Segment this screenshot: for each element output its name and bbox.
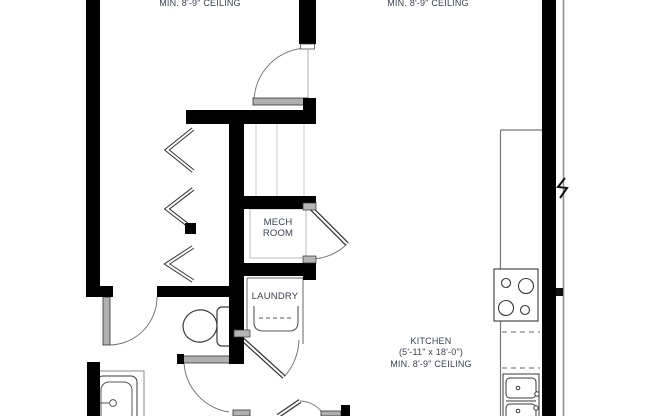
bifold-doors xyxy=(167,129,193,281)
wall-left-lower xyxy=(87,362,100,416)
wall-upper-corner xyxy=(303,98,316,124)
door-mech-room xyxy=(310,207,347,259)
door-bathroom xyxy=(103,297,157,345)
wall-entry-top xyxy=(299,0,316,44)
ceiling-note-left: MIN. 8'-9" CEILING xyxy=(148,0,252,8)
dishwasher-dashed-lines xyxy=(502,332,540,368)
wall-mech-bottom-jamb xyxy=(303,263,316,280)
wall-left-upper xyxy=(86,0,100,297)
double-sink-symbol xyxy=(503,374,539,416)
wall-mech-top-jamb xyxy=(303,196,316,203)
door-hall-1 xyxy=(240,337,299,377)
mech-room-label-line1: MECH xyxy=(248,217,308,228)
floor-plan-drawing xyxy=(0,0,652,416)
bathtub-symbol xyxy=(97,371,144,416)
wall-bathroom-top xyxy=(157,286,244,297)
wall-bath-top-stub xyxy=(100,286,113,297)
mech-room-label: MECH ROOM xyxy=(248,217,308,239)
kitchen-label-dims: (5'-11" x 18'-0") xyxy=(368,347,494,358)
kitchen-label-ceiling: MIN. 8'-9" CEILING xyxy=(368,359,494,370)
mech-room-label-line2: ROOM xyxy=(248,228,308,239)
wall-right xyxy=(542,0,556,416)
ceiling-note-right: MIN. 8'-9" CEILING xyxy=(376,0,480,8)
toilet-symbol xyxy=(180,306,233,346)
bifold-jamb xyxy=(185,223,196,234)
laundry-outline xyxy=(247,278,303,344)
floor-plan: MIN. 8'-9" CEILING MIN. 8'-9" CEILING ME… xyxy=(0,0,652,416)
soffit-lines xyxy=(256,124,304,206)
door-top-entry xyxy=(253,48,308,105)
jamb-bottom-edge xyxy=(341,405,350,416)
jamb-hall-left xyxy=(177,354,184,364)
door-hall-2 xyxy=(183,356,237,412)
wall-closet-vertical xyxy=(229,124,244,364)
door-bottom-edge xyxy=(233,401,341,416)
wall-upper-horizontal xyxy=(186,110,303,124)
laundry-label: LAUNDRY xyxy=(246,292,304,302)
jamb-hall-right xyxy=(236,354,244,364)
washer-symbol xyxy=(254,306,298,331)
kitchen-label-title: KITCHEN xyxy=(368,336,494,347)
cooktop-symbol xyxy=(494,269,538,321)
wall-mech-top xyxy=(243,196,303,209)
wall-break-symbol xyxy=(556,178,567,296)
kitchen-label: KITCHEN (5'-11" x 18'-0") MIN. 8'-9" CEI… xyxy=(368,336,494,370)
wall-laundry-top xyxy=(243,263,303,276)
